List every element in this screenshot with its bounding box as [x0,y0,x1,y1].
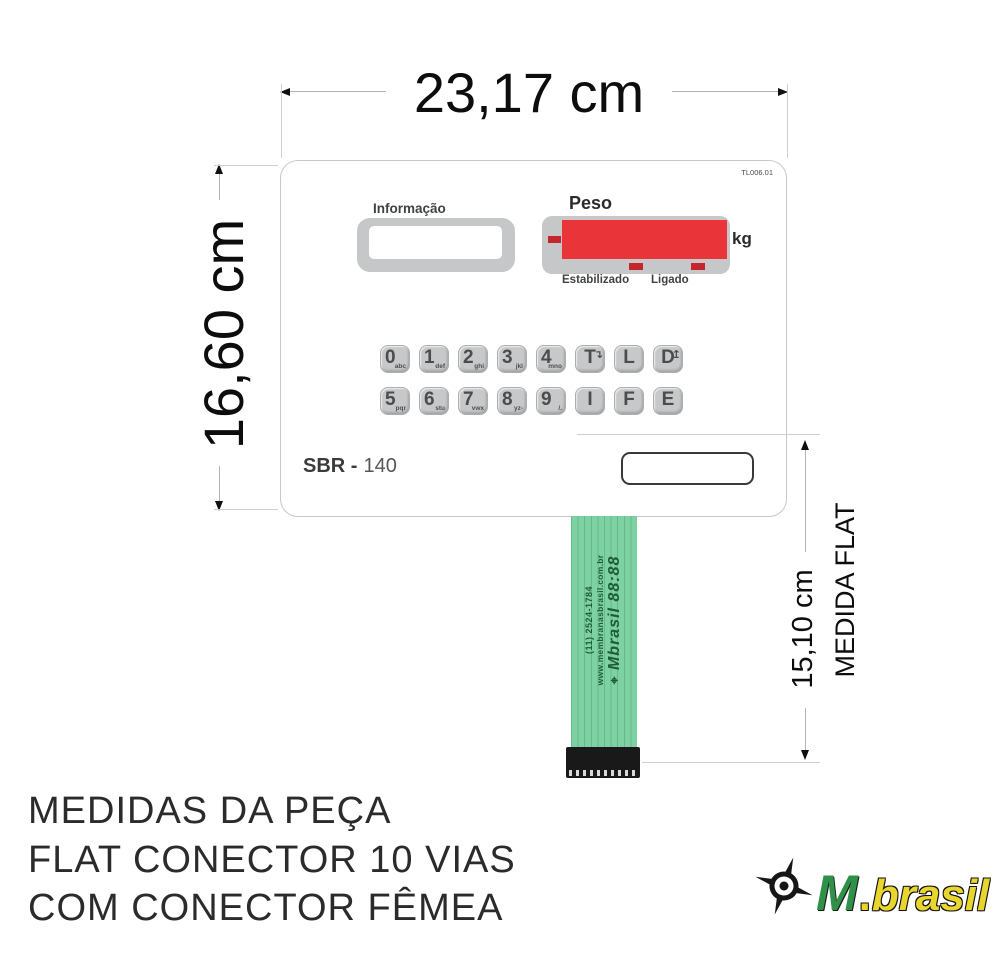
model-prefix: SBR - [303,455,357,477]
key-label: E [654,389,682,411]
serial-box [621,452,754,485]
extension-line [214,509,278,510]
cable-brand-text: Mbrasil 88:88 [606,556,623,670]
cable-website: www.membranasbrasil.com.br [595,555,605,686]
key-sub-label: yz- [514,405,523,412]
cable-brand: ⌖ Mbrasil 88:88 [606,556,624,685]
key-i[interactable]: I [575,387,605,415]
key-0[interactable]: 0abc [380,345,410,373]
key-label: 5 [385,389,396,411]
key-sub-label: stu [435,405,445,412]
key-9[interactable]: 9/. [536,387,566,415]
female-connector [566,747,640,778]
connector-pins [569,770,637,776]
flat-dimension-label: 15,10 cm [786,554,820,704]
key-e[interactable]: E [653,387,683,415]
extension-line [281,84,282,158]
unit-label: kg [732,229,752,249]
key-f[interactable]: F [614,387,644,415]
key-sub-label: ghi [474,363,484,370]
cable-print: (11) 2524-1784 www.membranasbrasil.com.b… [580,515,628,725]
model-label: SBR -140 [303,455,397,478]
key-2[interactable]: 2ghi [458,345,488,373]
key-label: 2 [463,347,474,369]
key-sub-label: def [435,363,445,370]
weight-display-window [562,220,727,259]
stabilized-label: Estabilizado [562,274,629,286]
weight-display-frame [542,216,730,274]
extension-line [214,165,278,166]
info-display-label: Informação [373,201,446,216]
flat-leader-line-top [577,434,820,435]
crosshair-icon: ⌖ [607,675,623,684]
logo-brasil: brasil [872,876,989,916]
key-sub-label: jkl [516,363,523,370]
minus-indicator [548,236,561,243]
logo-dot: . [859,876,871,916]
key-sub-label: abc [395,363,406,370]
extension-line [787,84,788,158]
product-diagram: 23,17 cm 16,60 cm TL006.01 Informação Pe… [0,0,1000,956]
weight-display-label: Peso [569,193,612,214]
on-label: Ligado [651,274,689,286]
arrow-up-icon [801,440,809,450]
info-display-frame [357,218,515,272]
info-display-window [369,226,502,259]
footer-line-3: COM CONECTOR FÊMEA [28,887,503,930]
flat-dimension-caption: MEDIDA FLAT [829,490,861,690]
key-label: F [615,389,643,411]
key-sub-label: mno [548,363,562,370]
flat-dimension-line-top [805,444,806,552]
key-1[interactable]: 1def [419,345,449,373]
key-8[interactable]: 8yz- [497,387,527,415]
width-dimension-line-left [284,91,386,92]
height-dimension-label: 16,60 cm [193,204,255,464]
key-label: 9 [541,389,552,411]
cable-phone: (11) 2524-1784 [584,586,594,654]
key-label: 3 [502,347,513,369]
key-label: 8 [502,389,513,411]
arrow-down-icon [801,750,809,760]
key-3[interactable]: 3jkl [497,345,527,373]
stabilized-indicator [629,263,643,270]
key-sub-label: pqr [396,405,406,412]
model-number: 140 [363,455,396,477]
key-5[interactable]: 5pqr [380,387,410,415]
key-t[interactable]: T↴ [575,345,605,373]
keypad-row-2: 5pqr6stu7vwx8yz-9/.IFE [380,387,683,415]
footer-line-1: MEDIDAS DA PEÇA [28,790,391,833]
keypad-row-1: 0abc1def2ghi3jkl4mnoT↴LD↥ [380,345,683,373]
power-indicator [691,263,705,270]
mbrasil-logo: M . brasil [754,856,989,916]
key-label: L [615,347,643,369]
key-sub-label: vwx [472,405,484,412]
enter-arrow-icon: ↥ [672,349,681,360]
compass-crosshair-icon [754,856,814,916]
key-d[interactable]: D↥ [653,345,683,373]
flat-dimension-line-bottom [805,708,806,756]
key-6[interactable]: 6stu [419,387,449,415]
key-label: 6 [424,389,435,411]
key-7[interactable]: 7vwx [458,387,488,415]
key-label: 1 [424,347,435,369]
tare-arrow-icon: ↴ [594,349,603,360]
key-sub-label: /. [558,405,562,412]
membrane-keypad-panel: TL006.01 Informação Peso kg Estabilizado… [280,160,787,517]
footer-line-2: FLAT CONECTOR 10 VIAS [28,839,516,882]
flat-leader-line-bottom [642,762,820,763]
key-l[interactable]: L [614,345,644,373]
key-label: I [576,389,604,411]
key-4[interactable]: 4mno [536,345,566,373]
width-dimension-label: 23,17 cm [384,60,674,125]
part-code: TL006.01 [741,168,773,177]
logo-m: M [816,871,858,916]
width-dimension-line-right [672,91,787,92]
